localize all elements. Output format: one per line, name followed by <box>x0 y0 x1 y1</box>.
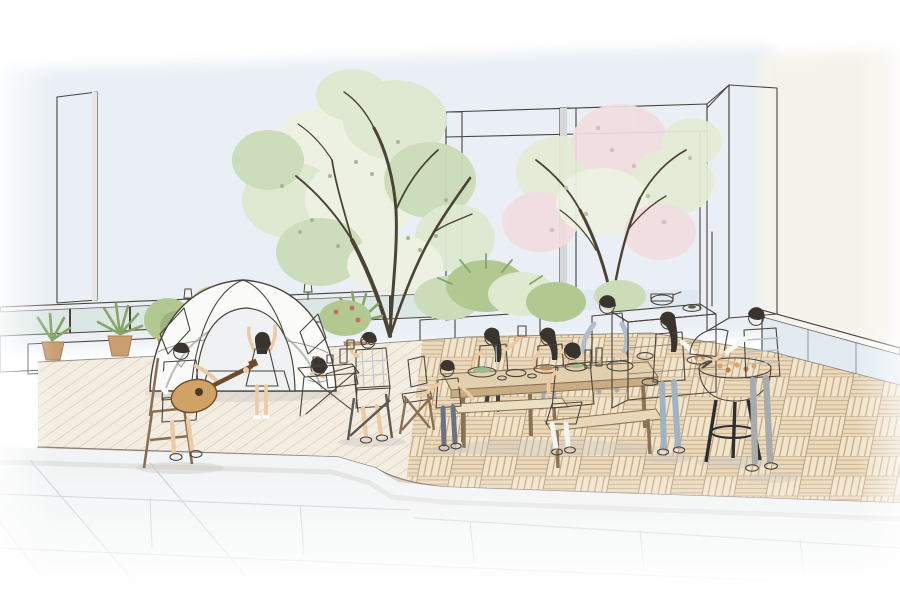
illustration-canvas <box>0 0 900 600</box>
flower-shrub <box>319 300 371 336</box>
rooftop-terrace-illustration <box>0 0 900 600</box>
